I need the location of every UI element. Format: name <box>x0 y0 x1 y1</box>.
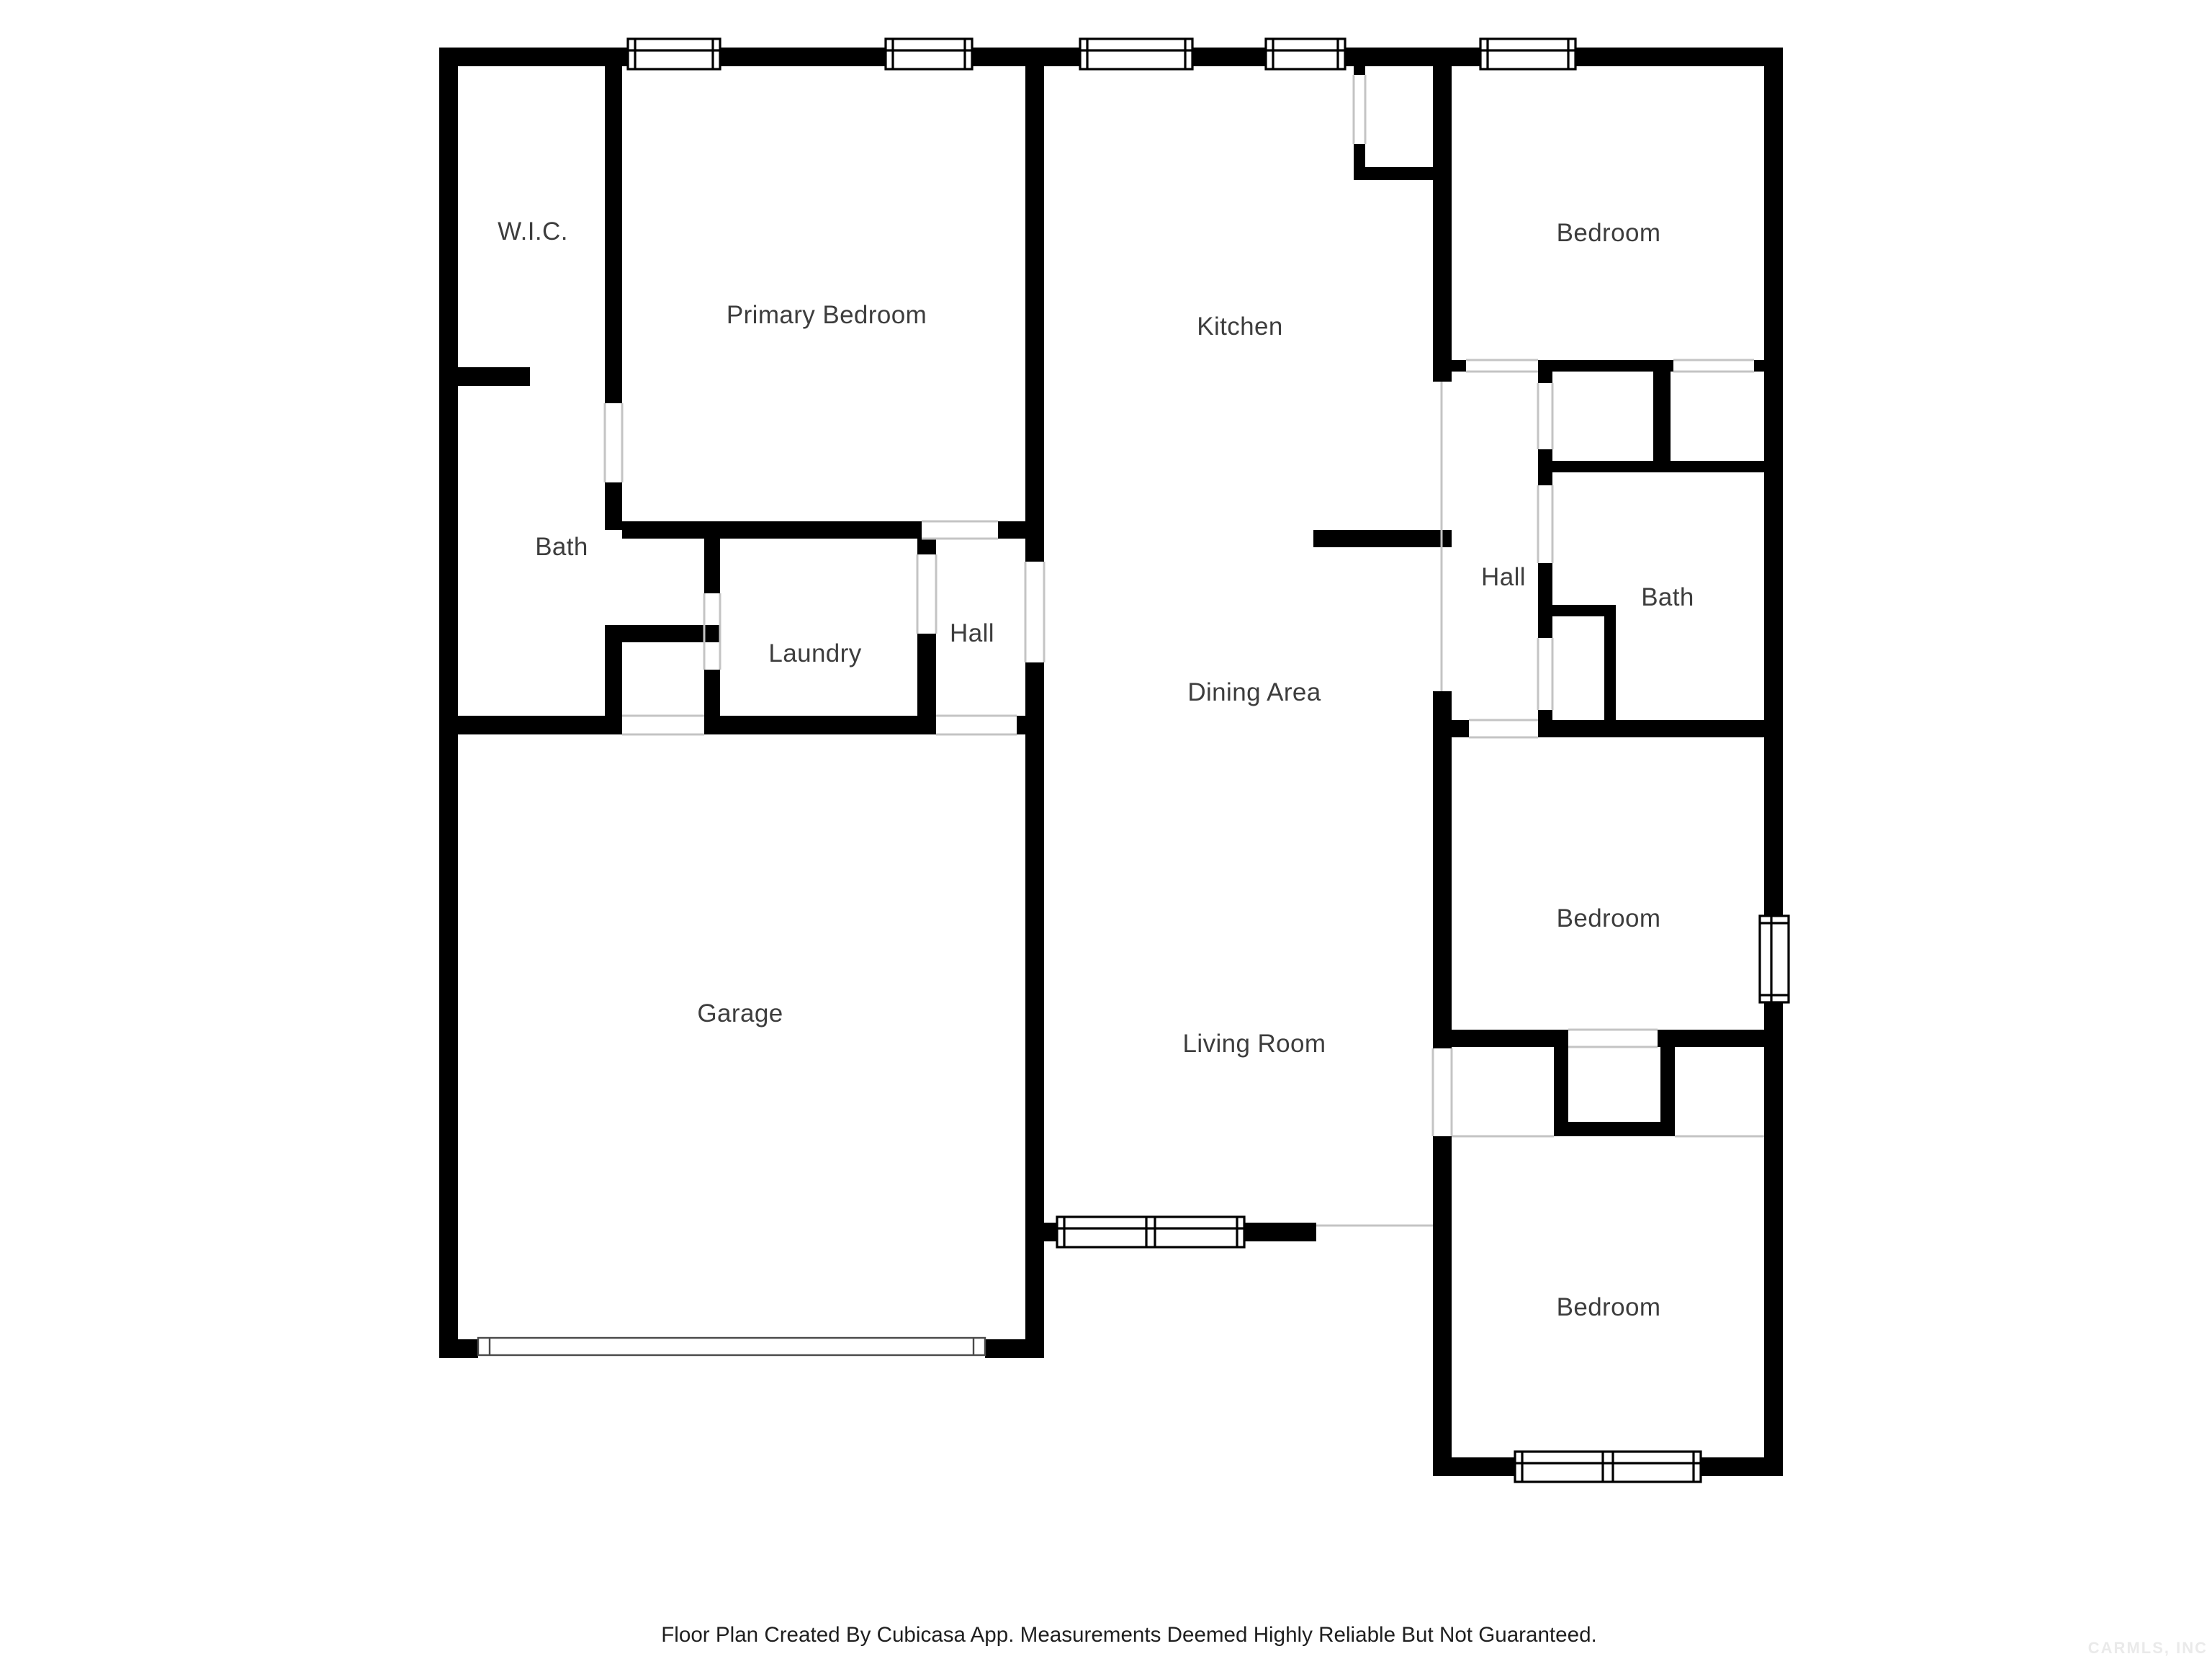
windows <box>478 39 1789 1482</box>
window-bedroom-top <box>1480 39 1575 69</box>
room-label-primary-bedroom: Primary Bedroom <box>727 300 927 331</box>
footer-disclaimer: Floor Plan Created By Cubicasa App. Meas… <box>661 1624 1597 1647</box>
room-label-garage: Garage <box>697 999 783 1029</box>
floor-plan-drawing <box>0 0 2212 1659</box>
window-bedroom-middle <box>1760 916 1789 1002</box>
room-label-kitchen: Kitchen <box>1197 312 1283 342</box>
room-label-bath-right: Bath <box>1641 583 1694 613</box>
window-kitchen-left <box>1080 39 1192 69</box>
room-label-wic: W.I.C. <box>498 217 568 247</box>
garage-door <box>478 1338 985 1355</box>
window-living-room-double <box>1057 1217 1244 1247</box>
room-label-living-room: Living Room <box>1183 1029 1326 1059</box>
window-kitchen-right <box>1266 39 1345 69</box>
window-primary-left <box>628 39 720 69</box>
room-label-bedroom-bottom: Bedroom <box>1557 1292 1661 1323</box>
exterior-walls <box>439 48 1783 1476</box>
window-bedroom-bottom-double <box>1515 1452 1701 1482</box>
room-label-bedroom-middle: Bedroom <box>1557 904 1661 934</box>
watermark-carmls: CARMLS, INC <box>2088 1640 2208 1658</box>
interior-walls <box>458 66 1764 1476</box>
window-primary-right <box>886 39 972 69</box>
room-label-laundry: Laundry <box>768 639 861 669</box>
room-label-hall-right: Hall <box>1481 562 1526 593</box>
open-boundary-lines <box>1316 382 1764 1226</box>
room-label-hall-left: Hall <box>950 619 994 649</box>
room-label-bath-left: Bath <box>535 532 588 562</box>
room-label-bedroom-top-right: Bedroom <box>1557 218 1661 248</box>
floor-plan-page: W.I.C. Primary Bedroom Kitchen Bedroom B… <box>0 0 2212 1659</box>
room-label-dining-area: Dining Area <box>1187 678 1321 708</box>
